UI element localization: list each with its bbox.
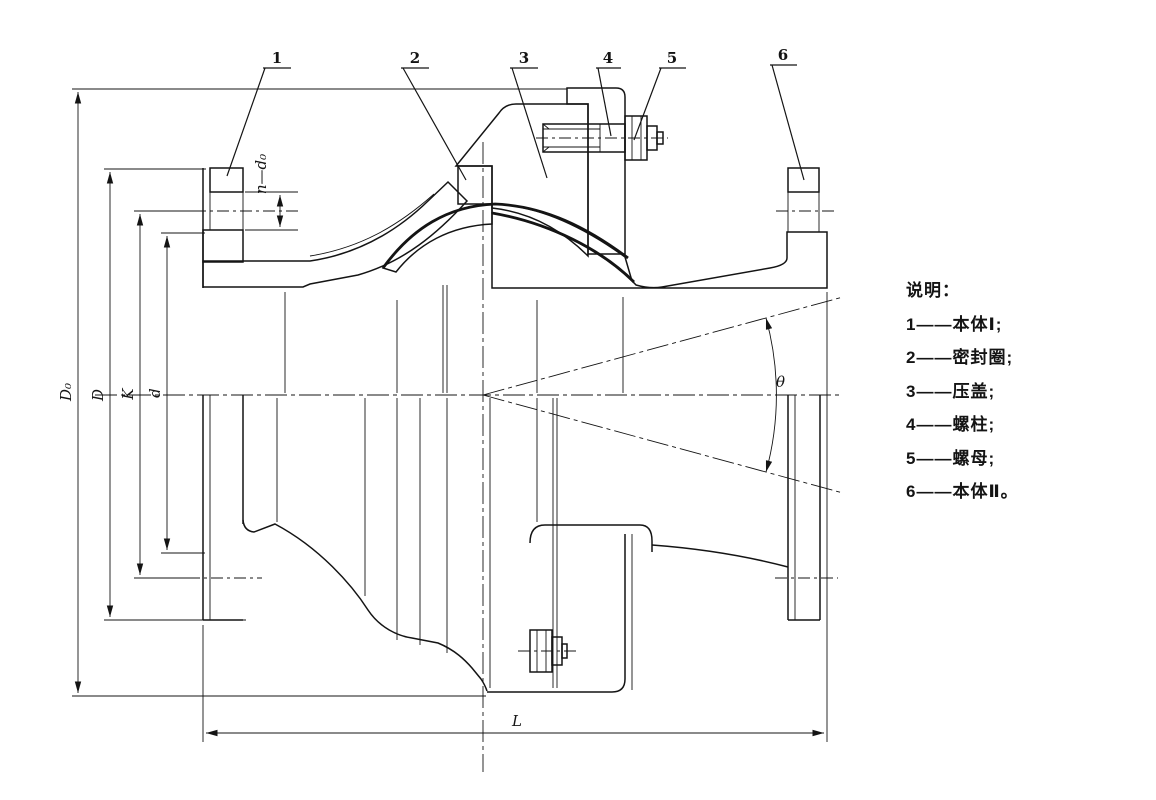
legend-item-3: 3——压盖; xyxy=(906,375,1146,409)
dimension-d: D xyxy=(89,169,246,620)
dimension-d-bore: d xyxy=(146,233,205,553)
d-label: D xyxy=(89,389,107,402)
legend-item-2: 2——密封圈; xyxy=(906,341,1146,375)
legend-item-6: 6——本体Ⅱ。 xyxy=(906,475,1146,509)
callout-2: 2 xyxy=(401,49,466,180)
centerlines xyxy=(95,142,843,772)
legend-item-1: 1——本体Ⅰ; xyxy=(906,308,1146,342)
housing-block xyxy=(567,88,625,254)
callouts: 1 2 3 4 5 6 xyxy=(227,46,804,180)
left-flange-section xyxy=(203,168,243,288)
dimension-nd0: n—d₀ xyxy=(245,154,298,230)
gland xyxy=(456,104,588,256)
legend-item-5: 5——螺母; xyxy=(906,442,1146,476)
nut-bottom xyxy=(518,630,580,672)
callout-3: 3 xyxy=(510,49,547,178)
bottom-view-outline xyxy=(203,395,820,692)
seal-ring xyxy=(458,166,492,204)
legend-title: 说明： xyxy=(906,274,1146,308)
svg-text:4: 4 xyxy=(603,49,613,67)
svg-text:5: 5 xyxy=(667,49,677,67)
svg-text:1: 1 xyxy=(272,49,282,67)
nut-top xyxy=(536,116,668,160)
svg-text:2: 2 xyxy=(410,49,420,67)
k-label: K xyxy=(119,388,137,401)
callout-6: 6 xyxy=(770,46,804,180)
l-label: L xyxy=(511,712,522,730)
dimension-l: L xyxy=(203,292,827,742)
legend: 说明： 1——本体Ⅰ; 2——密封圈; 3——压盖; 4——螺柱; 5——螺母;… xyxy=(906,274,1146,509)
drawing-page: θ D₀ D K d n—d₀ L 1 xyxy=(0,0,1156,800)
theta-label: θ xyxy=(776,373,785,391)
bore-contour-lines-top xyxy=(285,285,623,393)
ball-surface-arc xyxy=(383,204,628,268)
legend-item-4: 4——螺柱; xyxy=(906,408,1146,442)
nd0-label: n—d₀ xyxy=(252,154,270,194)
svg-text:6: 6 xyxy=(778,46,788,64)
callout-5: 5 xyxy=(634,49,686,140)
d0-label: D₀ xyxy=(57,383,75,402)
housing-band xyxy=(492,213,827,288)
callout-4: 4 xyxy=(596,49,621,136)
d-bore-label: d xyxy=(146,388,164,398)
svg-text:3: 3 xyxy=(519,49,529,67)
